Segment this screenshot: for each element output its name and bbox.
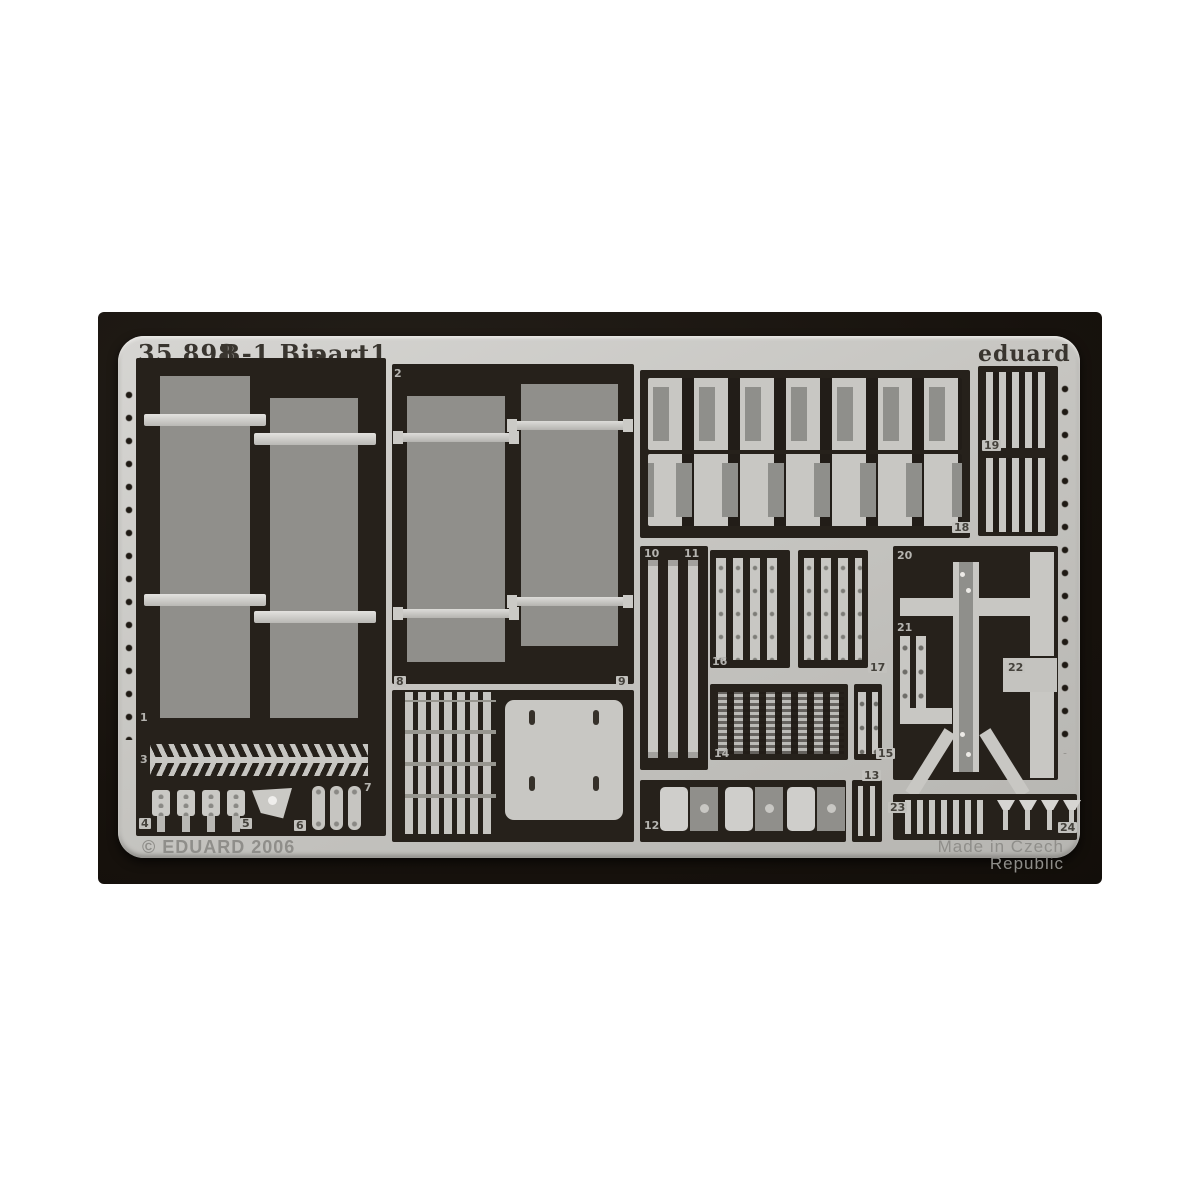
panel-13	[852, 780, 882, 842]
part-6-capsule	[312, 786, 325, 830]
bracket	[202, 790, 220, 816]
panel-23-24	[893, 794, 1077, 840]
part-label-8: 8	[394, 676, 406, 687]
part-14-coil-strips	[718, 692, 844, 754]
part-11-bar	[668, 560, 678, 758]
funnel-head	[1041, 800, 1059, 810]
panel-track-links	[640, 370, 970, 538]
part-label-24: 24	[1058, 822, 1077, 833]
part-2-strap	[510, 421, 630, 430]
part-20-arm-left	[900, 598, 956, 616]
sawtooth-lower	[150, 763, 368, 776]
part-11-bar	[688, 560, 698, 758]
bracket-stem	[182, 816, 190, 832]
part-label-23: 23	[888, 802, 907, 813]
part-label-12: 12	[644, 820, 659, 831]
part-22-rect-upper	[1030, 552, 1054, 656]
part-label-7: 7	[364, 782, 372, 793]
part-1-strap	[144, 594, 266, 606]
panel-14	[710, 684, 848, 760]
part-label-13: 13	[862, 770, 881, 781]
part-15-strips	[858, 692, 878, 754]
part-label-11: 11	[684, 548, 699, 559]
funnel-head	[1063, 800, 1081, 810]
plate-hole	[700, 804, 709, 813]
part-label-15: 15	[876, 748, 895, 759]
plate-hole	[827, 804, 836, 813]
part-12-plate-light	[787, 787, 815, 831]
panel-left	[136, 358, 386, 836]
panel-mid-top	[392, 364, 634, 684]
part-8-strip-bundle	[405, 692, 496, 834]
part-label-10: 10	[644, 548, 659, 559]
product-photo: 35 898 B-1 Bis part1 eduard	[0, 0, 1200, 1200]
bracket-stem	[232, 816, 240, 832]
part-20-leg-left	[905, 728, 955, 798]
part-20-arm-right	[977, 598, 1031, 616]
panel-20	[893, 546, 1058, 780]
bracket	[177, 790, 195, 816]
part-18-link-row	[648, 378, 962, 450]
central-bar-channel	[959, 562, 973, 772]
part-12-plate-grey	[817, 787, 845, 831]
part-16-strips	[716, 558, 782, 660]
part-label-5: 5	[240, 818, 252, 829]
part-label-20: 20	[897, 550, 912, 561]
funnel-stem	[1003, 810, 1008, 830]
part-12-plate-light	[725, 787, 753, 831]
part-18-link-row	[648, 454, 962, 526]
rivet-dot	[960, 732, 965, 737]
link-inner-plates	[648, 387, 962, 441]
part-2-strap	[396, 609, 516, 618]
panel-12	[640, 780, 846, 842]
funnel-head	[997, 800, 1015, 810]
panel-mid-bottom	[392, 690, 634, 842]
bracket	[152, 790, 170, 816]
funnel-head	[1019, 800, 1037, 810]
bracket	[227, 790, 245, 816]
part-label-22: 22	[1006, 662, 1025, 673]
plate-slot	[593, 710, 599, 725]
part-3-sawtooth-strip	[150, 744, 368, 776]
brand-logo-text: eduard	[978, 343, 1062, 365]
part-label-3: 3	[140, 754, 148, 765]
sprocket-holes-left	[122, 384, 136, 740]
part-label-1: 1	[140, 712, 148, 723]
panel-17	[798, 550, 868, 668]
rivet-dot	[960, 572, 965, 577]
strip-segments	[405, 700, 496, 826]
part-label-19: 19	[982, 440, 1001, 451]
coil-texture	[718, 692, 844, 754]
part-22-rect-lower	[1030, 688, 1054, 778]
rivet-dot	[966, 588, 971, 593]
rivet-dot	[966, 752, 971, 757]
part-20-leg-right	[979, 728, 1029, 798]
part-12-plate-light	[660, 787, 688, 831]
link-inner-plates	[648, 463, 962, 517]
part-6-capsule	[348, 786, 361, 830]
part-1-fender-plate-a	[160, 376, 250, 718]
part-12-plate-grey	[755, 787, 783, 831]
part-13-strips	[858, 786, 875, 836]
part-21-strips	[900, 636, 926, 708]
part-label-4: 4	[139, 818, 151, 829]
sprocket-holes-right	[1058, 378, 1072, 754]
plate-hole	[765, 804, 774, 813]
plate-slot	[529, 776, 535, 791]
bracket-stem	[207, 816, 215, 832]
origin-text: Made in Czech Republic	[878, 838, 1064, 872]
part-label-9: 9	[616, 676, 628, 687]
funnel-stem	[1047, 810, 1052, 830]
part-12-plate-grey	[690, 787, 718, 831]
part-2-strap	[396, 433, 516, 442]
part-label-21: 21	[897, 622, 912, 633]
part-19-bar-group	[986, 372, 1050, 448]
plate-slot	[529, 710, 535, 725]
part-19-bar-group	[986, 458, 1050, 532]
sawtooth-upper	[150, 744, 368, 757]
part-5-hole	[268, 796, 277, 805]
part-label-16: 16	[712, 656, 727, 667]
part-label-6: 6	[294, 820, 306, 831]
part-23-bar-row	[905, 800, 989, 834]
part-20-central-bar	[953, 562, 979, 772]
part-label-14: 14	[714, 748, 729, 759]
part-1-strap	[144, 414, 266, 426]
plate-slot	[593, 776, 599, 791]
copyright-text: © EDUARD 2006	[142, 838, 295, 856]
part-2-strap	[510, 597, 630, 606]
part-20-arm-left-lower	[900, 708, 952, 724]
bracket-stem	[157, 816, 165, 832]
part-9-plate	[505, 700, 623, 820]
etch-fret-sheet: 35 898 B-1 Bis part1 eduard	[118, 336, 1080, 858]
panel-10-11	[640, 546, 708, 770]
part-10-bar	[648, 560, 658, 758]
part-label-2: 2	[394, 368, 402, 379]
part-label-18: 18	[952, 522, 971, 533]
photo-dark-mat: 35 898 B-1 Bis part1 eduard	[98, 312, 1102, 884]
panel-16	[710, 550, 790, 668]
part-1-strap	[254, 611, 376, 623]
funnel-stem	[1025, 810, 1030, 830]
part-1-fender-plate-b	[270, 398, 358, 718]
part-label-17: 17	[868, 662, 887, 673]
part-6-capsule	[330, 786, 343, 830]
part-1-strap	[254, 433, 376, 445]
part-17-strips	[804, 558, 862, 660]
